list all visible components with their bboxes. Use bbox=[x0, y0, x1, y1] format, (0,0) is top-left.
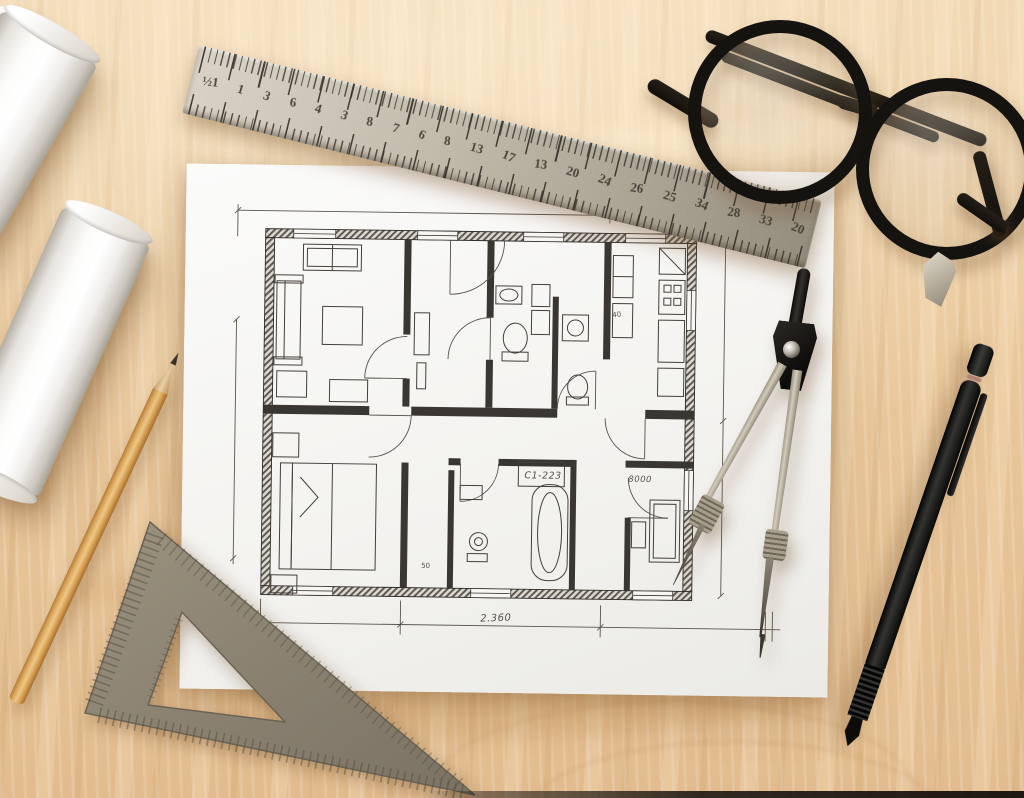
desk-edge-shadow bbox=[425, 791, 1024, 798]
pencil-push-cap bbox=[965, 342, 995, 379]
compass-lead-tip bbox=[758, 634, 766, 658]
compass-needle bbox=[670, 523, 705, 587]
compass-leg-left bbox=[698, 361, 788, 509]
compass-lead-holder bbox=[756, 558, 774, 638]
compass-pivot-screw bbox=[783, 341, 800, 358]
compass-joint-left bbox=[687, 493, 725, 535]
compass-joint-right bbox=[762, 529, 789, 562]
pencil-grip-ridges bbox=[847, 663, 884, 721]
compass-grip-stem bbox=[788, 267, 812, 330]
compass-leg-right bbox=[767, 369, 804, 539]
desk-scene: 97 2.360 C1-223 8000 50 40 ½113643876813… bbox=[0, 0, 1024, 798]
